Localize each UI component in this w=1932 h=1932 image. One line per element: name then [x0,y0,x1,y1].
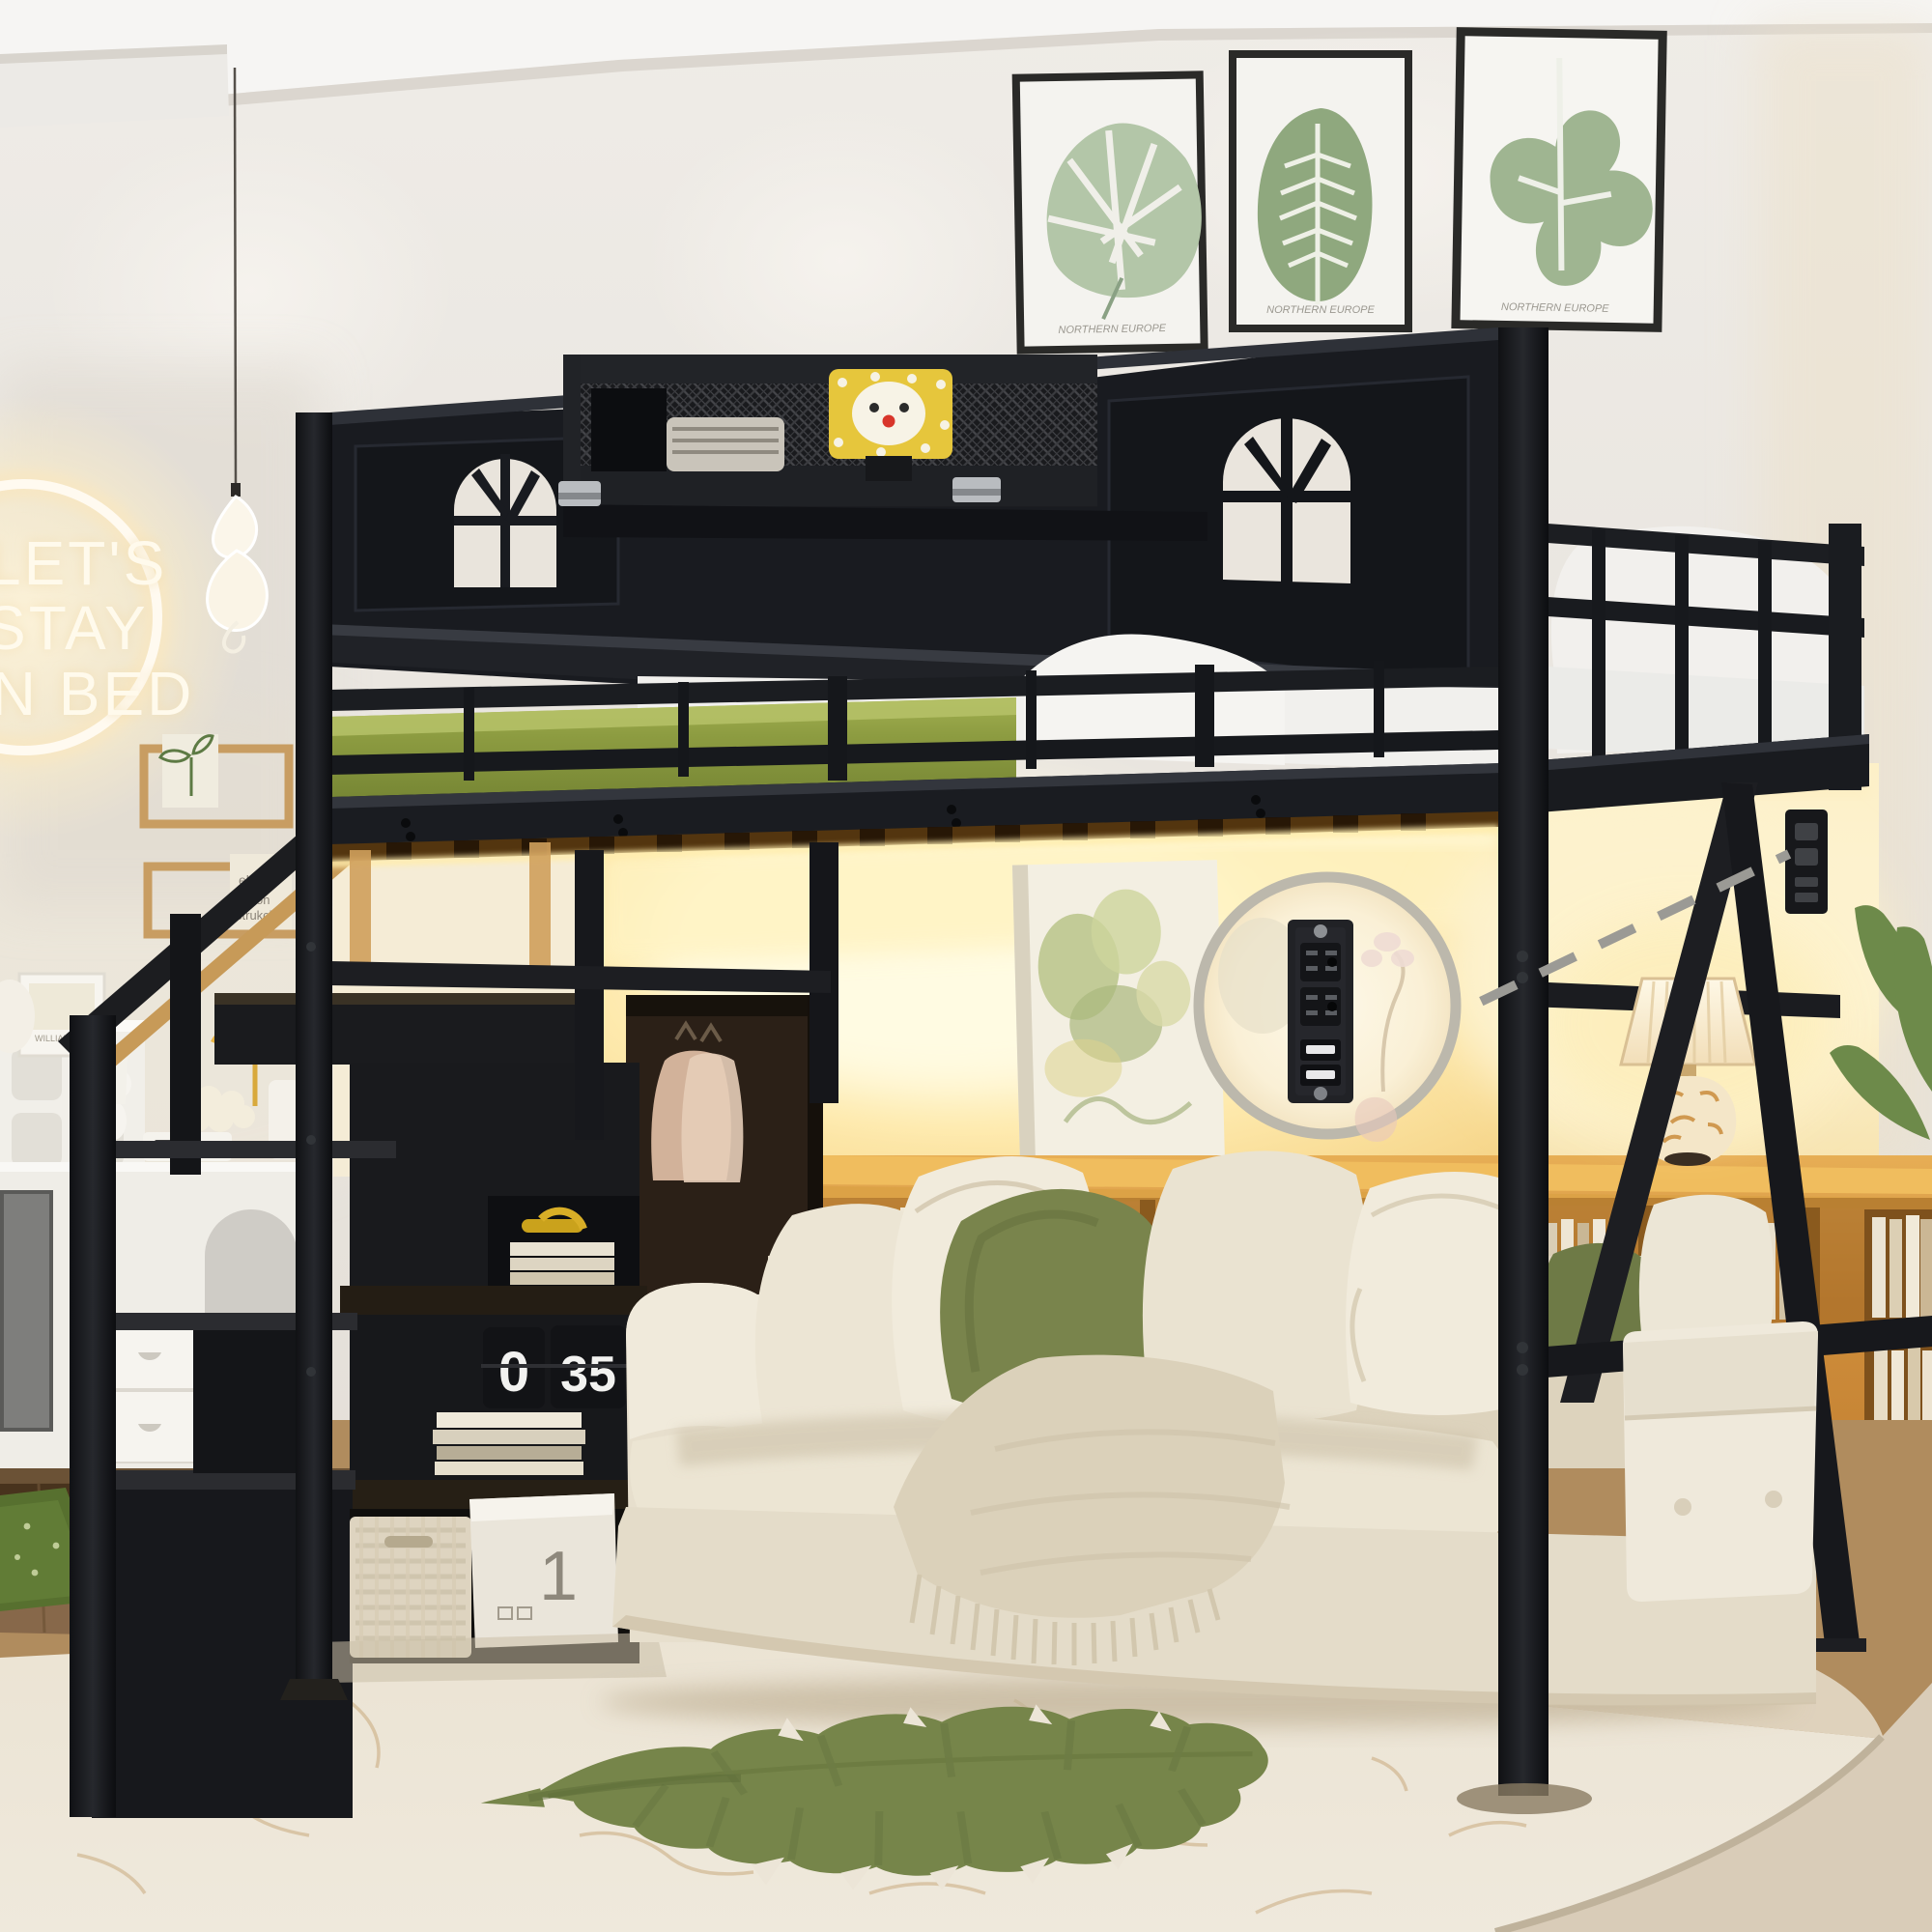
svg-text:IN BED: IN BED [0,659,194,728]
svg-text:NORTHERN EUROPE: NORTHERN EUROPE [1058,323,1166,336]
svg-text:LET'S: LET'S [0,528,167,598]
svg-text:35: 35 [560,1347,616,1403]
svg-text:NORTHERN EUROPE: NORTHERN EUROPE [1501,301,1609,315]
svg-text:NORTHERN EUROPE: NORTHERN EUROPE [1266,304,1375,316]
svg-text:1: 1 [539,1538,578,1615]
svg-text:0: 0 [498,1341,529,1404]
svg-text:STAY: STAY [0,593,149,663]
